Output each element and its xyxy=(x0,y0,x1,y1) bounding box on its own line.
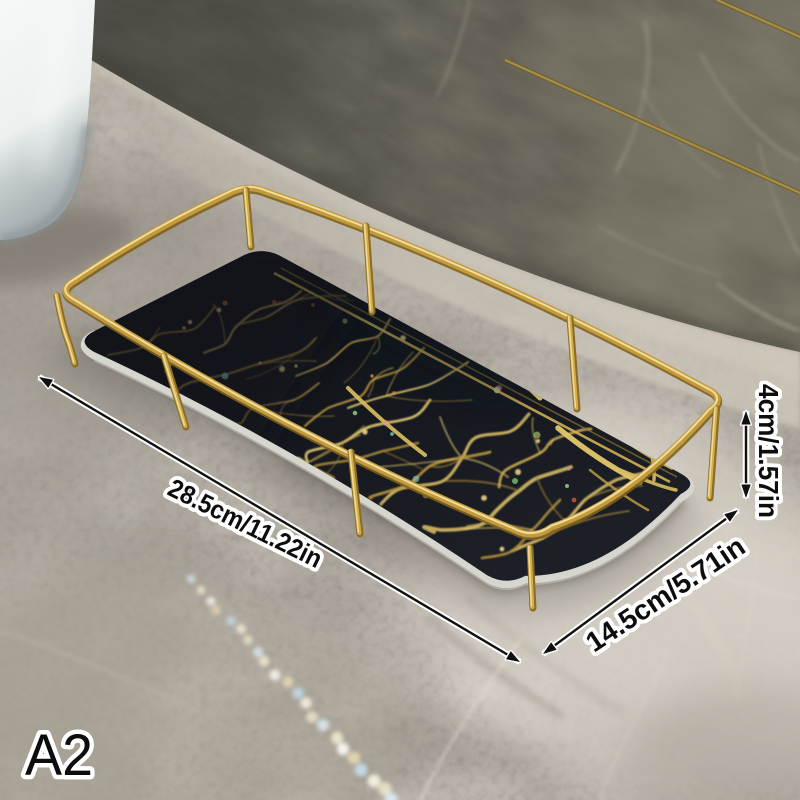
svg-text:4cm/1.57in: 4cm/1.57in xyxy=(753,384,784,518)
svg-text:A2: A2 xyxy=(25,723,93,788)
